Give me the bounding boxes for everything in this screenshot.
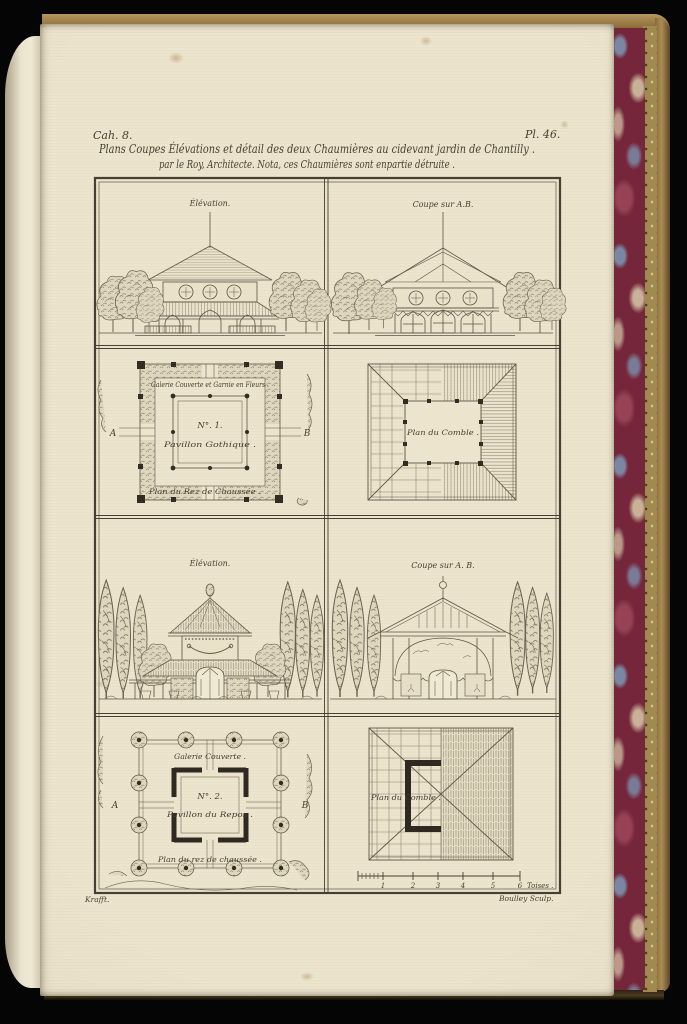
scale-tick-6: 6 bbox=[518, 882, 523, 890]
panel3-gallery-label: Galerie Couverte et Garnie en Fleurs . bbox=[151, 381, 269, 389]
panel-section-1: Coupe sur A.B. bbox=[331, 200, 566, 336]
scale-unit-label: Toises . bbox=[527, 882, 553, 890]
panel1-label: Élévation. bbox=[189, 199, 231, 208]
scale-tick-4: 4 bbox=[460, 882, 465, 890]
scale-tick-1: 1 bbox=[381, 882, 385, 890]
cahier-number: Cah. 8. bbox=[93, 129, 133, 142]
panel7-gallery-label: Galerie Couverte . bbox=[174, 753, 246, 761]
scale-bar bbox=[358, 871, 520, 881]
panel6-label: Coupe sur A. B. bbox=[411, 561, 474, 570]
panel-section-2: Coupe sur A. B. bbox=[330, 561, 556, 699]
panel7-marker-b: B bbox=[301, 801, 309, 811]
panel7-marker-a: A bbox=[111, 801, 119, 811]
scale-tick-5: 5 bbox=[491, 882, 496, 890]
scale-tick-3: 3 bbox=[436, 882, 441, 890]
credit-engraver: Boulley Sculp. bbox=[498, 894, 553, 903]
book-cover-right-edge bbox=[655, 18, 670, 992]
panel7-number: N°. 2. bbox=[196, 792, 222, 802]
panel-plan-rdc-2: Galerie Couverte . N°. 2. Pavillon du Re… bbox=[98, 732, 312, 890]
panel3-name: Pavillon Gothique . bbox=[163, 440, 256, 449]
book-photo: Cah. 8. Pl. 46. Plans Coupes Élévations … bbox=[0, 0, 687, 1024]
panel2-label: Coupe sur A.B. bbox=[413, 200, 474, 209]
panel3-marker-a: A bbox=[109, 429, 117, 439]
plate-title-line1: Plans Coupes Élévations et détail des de… bbox=[98, 141, 535, 156]
scale-tick-2: 2 bbox=[410, 882, 416, 890]
panel3-marker-b: B bbox=[303, 429, 311, 439]
panel4-label: Plan du Comble . bbox=[406, 428, 479, 437]
panel5-label: Élévation. bbox=[189, 559, 231, 568]
panel-elevation-2: Élévation. bbox=[98, 559, 323, 699]
book-marbled-edge bbox=[612, 28, 645, 990]
panel-plan-comble-1: Plan du Comble . bbox=[368, 364, 516, 500]
credit-designer: Krafft. bbox=[84, 895, 109, 904]
panel3-plan-label: Plan du Rez de Chaussée . bbox=[148, 488, 261, 496]
book-gilt-edge bbox=[643, 26, 657, 992]
panel7-name: Pavillon du Repos . bbox=[166, 810, 253, 819]
panel-elevation-1: Élévation. bbox=[97, 199, 331, 336]
plate-number: Pl. 46. bbox=[524, 128, 560, 141]
plate-title-line2: par le Roy, Architecte. Nota, ces Chaumi… bbox=[159, 158, 455, 171]
panel-plan-comble-2: Plan du Comble . 1 2 3 4 5 6 Toises . bbox=[358, 728, 553, 890]
panel3-number: N°. 1. bbox=[196, 421, 222, 431]
panel7-plan-label: Plan du rez de chaussée . bbox=[157, 856, 262, 864]
panel8-label: Plan du Comble . bbox=[370, 793, 441, 802]
panel-plan-rdc-1: Galerie Couverte et Garnie en Fleurs . N… bbox=[98, 361, 312, 505]
engraved-plate: Cah. 8. Pl. 46. Plans Coupes Élévations … bbox=[75, 118, 575, 918]
